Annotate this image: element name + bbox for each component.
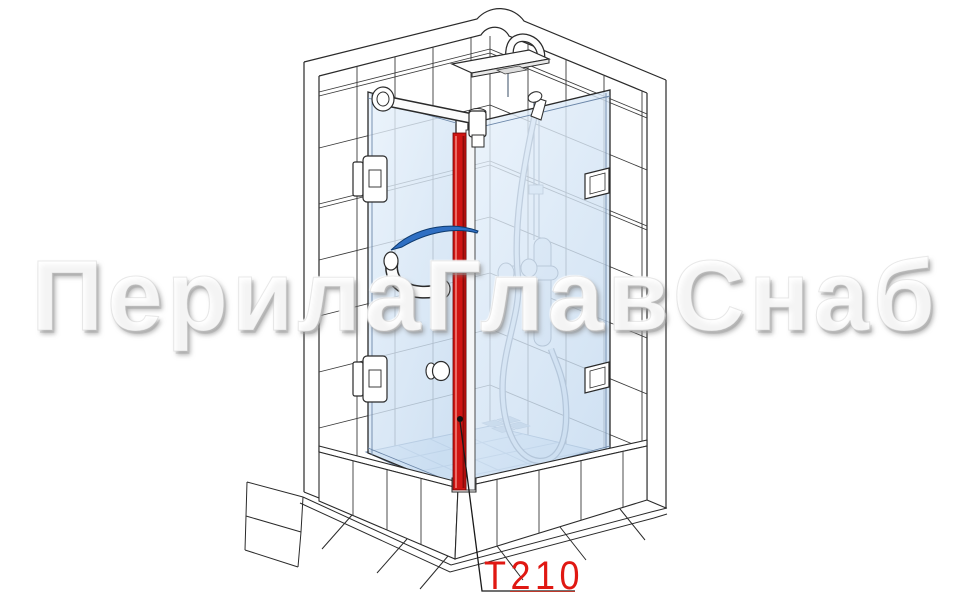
t210-profile-highlight [452,130,476,492]
shower-enclosure-diagram [0,0,970,606]
part-code-label: T210 [484,556,584,596]
door-knob [426,362,450,381]
glass-clamp [469,111,486,137]
door-hinge-top [353,156,387,202]
wall-bracket-bottom [585,362,609,393]
screenshot-canvas: T210 ПерилаГлавСнаб [0,0,970,606]
fixed-glass-panel [468,90,610,490]
door-hinge-bottom [353,356,387,402]
corner-profile [466,130,475,490]
wall-bracket-top [585,168,609,199]
